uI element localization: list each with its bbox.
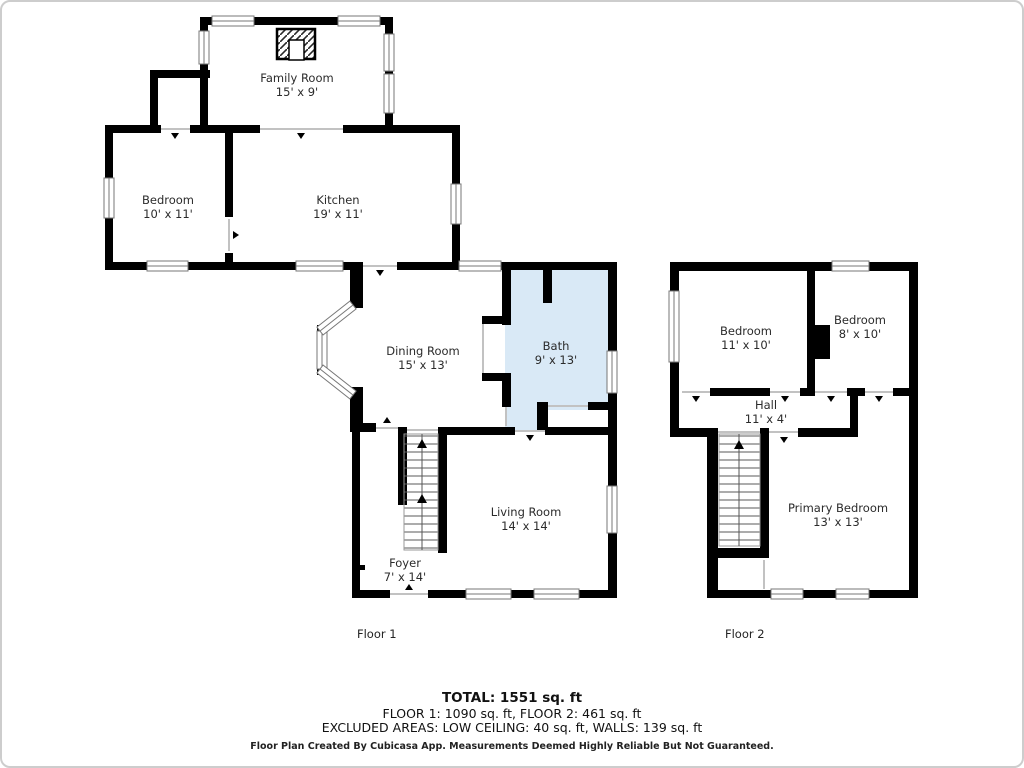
- room-dims: 19' x 11': [313, 207, 363, 221]
- room-dims: 10' x 11': [142, 207, 194, 221]
- room-label-family-room: Family Room 15' x 9': [260, 71, 333, 99]
- room-dims: 15' x 13': [386, 358, 460, 372]
- summary-total: TOTAL: 1551 sq. ft: [0, 690, 1024, 706]
- stairs-floor1: [404, 434, 438, 550]
- fireplace-icon: [277, 29, 315, 60]
- room-dims: 13' x 13': [788, 515, 888, 529]
- room-name: Kitchen: [313, 193, 363, 207]
- room-label-dining-room: Dining Room 15' x 13': [386, 344, 460, 372]
- room-name: Bedroom: [142, 193, 194, 207]
- room-label-bath: Bath 9' x 13': [535, 339, 577, 367]
- room-label-bedroom1-f2: Bedroom 11' x 10': [720, 324, 772, 352]
- room-dims: 11' x 4': [745, 412, 787, 426]
- floor-plan-page: Family Room 15' x 9' Bedroom 10' x 11' K…: [0, 0, 1024, 768]
- room-label-primary-bedroom: Primary Bedroom 13' x 13': [788, 501, 888, 529]
- room-name: Bedroom: [834, 313, 886, 327]
- stairs-floor2: [719, 434, 760, 546]
- floor2-caption: Floor 2: [725, 627, 765, 641]
- room-dims: 9' x 13': [535, 353, 577, 367]
- room-dims: 7' x 14': [384, 570, 426, 584]
- floor2-plan: [669, 261, 918, 599]
- room-name: Family Room: [260, 71, 333, 85]
- room-name: Primary Bedroom: [788, 501, 888, 515]
- room-label-foyer: Foyer 7' x 14': [384, 556, 426, 584]
- room-label-bedroom-f1: Bedroom 10' x 11': [142, 193, 194, 221]
- room-label-kitchen: Kitchen 19' x 11': [313, 193, 363, 221]
- room-name: Bedroom: [720, 324, 772, 338]
- room-name: Foyer: [384, 556, 426, 570]
- room-name: Living Room: [491, 505, 562, 519]
- room-dims: 14' x 14': [491, 519, 562, 533]
- room-label-hall: Hall 11' x 4': [745, 398, 787, 426]
- room-dims: 8' x 10': [834, 327, 886, 341]
- room-dims: 11' x 10': [720, 338, 772, 352]
- summary-floor-areas: FLOOR 1: 1090 sq. ft, FLOOR 2: 461 sq. f…: [0, 706, 1024, 721]
- floor-plan-drawing: [0, 0, 1024, 768]
- room-dims: 15' x 9': [260, 85, 333, 99]
- room-label-bedroom2-f2: Bedroom 8' x 10': [834, 313, 886, 341]
- floor1-caption: Floor 1: [357, 627, 397, 641]
- room-name: Bath: [535, 339, 577, 353]
- room-name: Dining Room: [386, 344, 460, 358]
- summary-excluded-areas: EXCLUDED AREAS: LOW CEILING: 40 sq. ft, …: [0, 720, 1024, 735]
- room-name: Hall: [745, 398, 787, 412]
- room-label-living-room: Living Room 14' x 14': [491, 505, 562, 533]
- summary-disclaimer: Floor Plan Created By Cubicasa App. Meas…: [0, 741, 1024, 752]
